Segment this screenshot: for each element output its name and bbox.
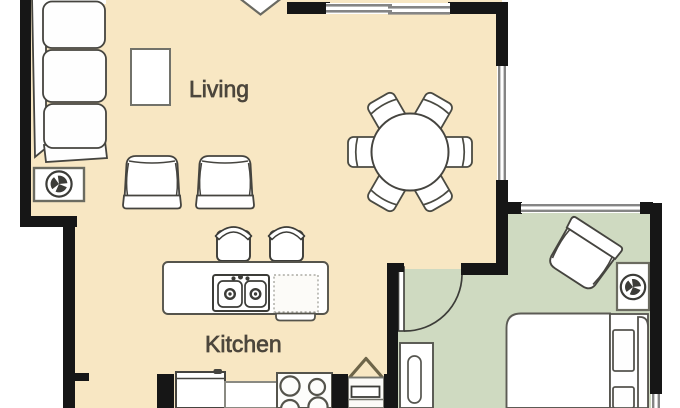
svg-text:Living: Living	[189, 76, 249, 102]
svg-text:Kitchen: Kitchen	[205, 331, 282, 357]
